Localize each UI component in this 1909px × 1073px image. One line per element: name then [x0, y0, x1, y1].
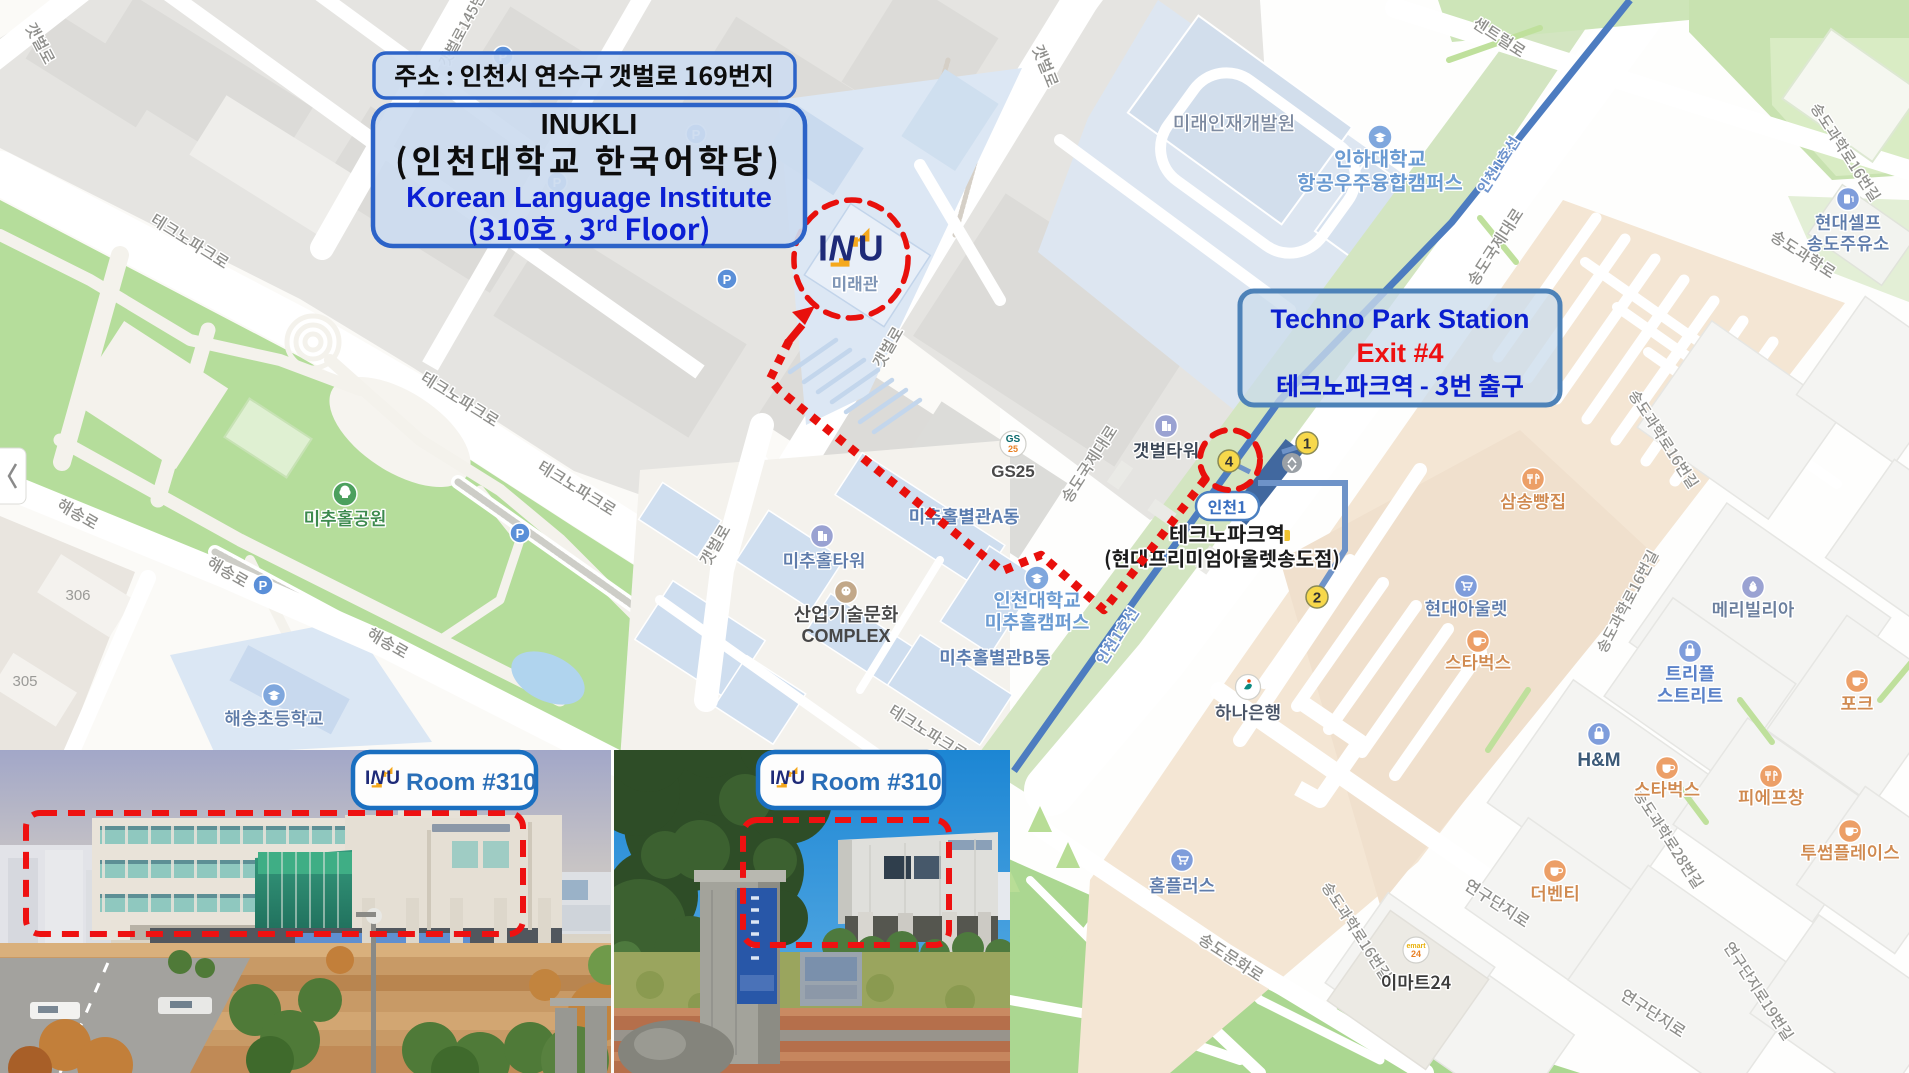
svg-text:305: 305 [12, 673, 37, 690]
svg-text:U: U [858, 228, 884, 268]
svg-text:U: U [791, 768, 805, 789]
svg-text:U: U [386, 768, 400, 789]
svg-text:I: I [365, 768, 370, 789]
svg-text:GS25: GS25 [991, 462, 1034, 481]
svg-text:N: N [829, 228, 856, 268]
svg-text:306: 306 [65, 587, 90, 604]
svg-text:4: 4 [1225, 454, 1234, 471]
svg-text:Room #310: Room #310 [406, 769, 537, 796]
svg-text:INUKLI: INUKLI [541, 109, 638, 141]
svg-text:24: 24 [1411, 949, 1421, 959]
svg-text:25: 25 [1008, 444, 1018, 454]
svg-text:Techno Park Station: Techno Park Station [1270, 304, 1529, 334]
svg-text:P: P [516, 526, 525, 541]
svg-text:N: N [371, 768, 386, 789]
svg-text:H&M: H&M [1577, 750, 1620, 771]
svg-text:P: P [259, 578, 268, 593]
svg-text:Room #310: Room #310 [811, 769, 942, 796]
svg-text:Korean Language Institute: Korean Language Institute [406, 182, 772, 214]
svg-text:Exit #4: Exit #4 [1356, 338, 1443, 368]
svg-text:I: I [770, 768, 775, 789]
svg-text:N: N [776, 768, 791, 789]
svg-text:COMPLEX: COMPLEX [801, 626, 890, 646]
svg-text:P: P [723, 272, 732, 287]
svg-text:1: 1 [1303, 436, 1311, 453]
svg-text:2: 2 [1313, 590, 1321, 607]
svg-text:I: I [818, 228, 827, 268]
